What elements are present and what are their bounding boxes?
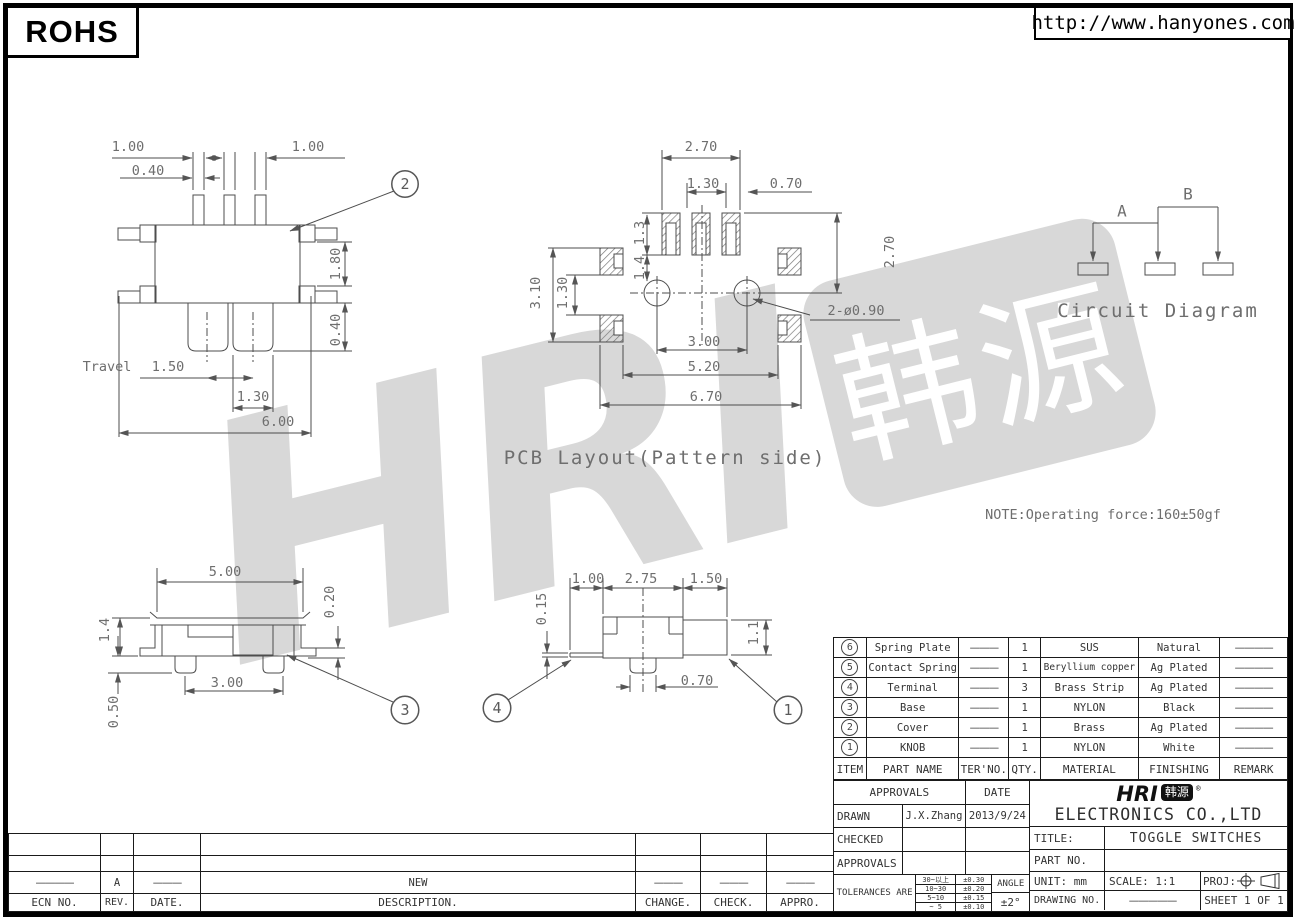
col-check: CHECK. — [701, 894, 767, 911]
sheet-cell: SHEET 1 OF 1 — [1201, 891, 1287, 910]
finishing: Ag Plated — [1139, 658, 1221, 677]
website-url: http://www.hanyones.com — [1034, 8, 1290, 40]
dim-hole-diameter: 2-ø0.90 — [828, 303, 885, 319]
ter-no: ——— — [959, 738, 1009, 757]
table-row: 3 Base ——— 1 NYLON Black ———— — [834, 698, 1287, 718]
item-circle: 4 — [841, 679, 858, 696]
tolerances-label: TOLERANCES ARE — [834, 875, 916, 911]
dim-hole-pitch: 3.00 — [688, 334, 721, 350]
item-circle: 6 — [841, 639, 858, 656]
dim-inner-span: 5.20 — [688, 359, 721, 375]
dim-pin-height: 0.50 — [106, 696, 122, 729]
dim-knob-height: 1.1 — [746, 621, 762, 645]
scale-cell: SCALE: 1:1 — [1105, 872, 1201, 890]
tolerance-subtable: 30~以上 ±0.30 10~30 ±0.20 5~10 ±0.15 ~ 5 ±… — [916, 875, 992, 911]
material: Brass Strip — [1041, 678, 1139, 697]
part-name: Terminal — [867, 678, 960, 697]
callout-cover: 2 — [391, 170, 419, 198]
dim-pin-pitch-right: 1.00 — [292, 139, 325, 155]
rohs-badge: ROHS — [8, 8, 139, 58]
dim-pin-width: 0.40 — [132, 163, 165, 179]
tol-value: ±0.30 — [956, 875, 991, 884]
dim-clearance: 0.20 — [322, 586, 338, 619]
tol-value: ±0.10 — [956, 903, 991, 911]
rev-appro: ——— — [767, 872, 833, 893]
company-logo: HRI 韩源 ® — [1116, 784, 1200, 805]
drawn-by: J.X.Zhang — [903, 805, 965, 827]
tol-value: ±0.20 — [956, 885, 991, 893]
table-row: 4 Terminal ——— 3 Brass Strip Ag Plated —… — [834, 678, 1287, 698]
operating-force-note: NOTE:Operating force:160±50gf — [985, 507, 1221, 523]
terminal-a-label: A — [1117, 202, 1127, 221]
material: Brass — [1041, 718, 1139, 737]
dim-front-left: 1.00 — [572, 571, 605, 587]
col-ecn-no: ECN NO. — [9, 894, 101, 911]
qty: 1 — [1009, 658, 1041, 677]
angle-value: ±2° — [992, 893, 1029, 911]
revision-header-row: ECN NO. REV. DATE. DESCRIPTION. CHANGE. … — [9, 894, 833, 911]
item-circle: 2 — [841, 719, 858, 736]
dim-travel-label: Travel — [83, 359, 132, 375]
col-appro: APPRO. — [767, 894, 833, 911]
revision-table: ———— A ——— NEW ——— ——— ——— ECN NO. REV. … — [8, 833, 834, 912]
finishing: Natural — [1139, 638, 1221, 657]
dim-front-pin-width: 0.70 — [681, 673, 714, 689]
table-row: 1 KNOB ——— 1 NYLON White ———— — [834, 738, 1287, 758]
ter-no: ——— — [959, 718, 1009, 737]
projection-cell: PROJ: — [1201, 872, 1287, 890]
registered-mark: ® — [1196, 784, 1201, 793]
engineering-drawing-sheet: { "header": { "rohs": "ROHS", "url": "ht… — [0, 0, 1296, 920]
dim-side-gap: 1.30 — [555, 277, 571, 310]
ter-no: ——— — [959, 678, 1009, 697]
dim-ear-offset: 0.40 — [328, 314, 344, 347]
unit-cell: UNIT: mm — [1030, 872, 1105, 890]
callout-base: 3 — [391, 696, 419, 724]
col-description: DESCRIPTION. — [201, 894, 636, 911]
dim-col-height: 2.70 — [882, 236, 898, 269]
dim-plate-thickness: 0.15 — [534, 593, 550, 626]
approvals-block: APPROVALS DATE DRAWN J.X.Zhang 2013/9/24… — [833, 780, 1030, 912]
logo-cn-box: 韩源 — [1161, 784, 1193, 802]
rev: A — [101, 872, 134, 893]
material: Beryllium copper — [1041, 658, 1139, 677]
ter-no: ——— — [959, 658, 1009, 677]
approvals-header: APPROVALS — [834, 781, 966, 804]
col-item: ITEM — [834, 758, 867, 781]
remark: ———— — [1220, 698, 1287, 717]
dim-cover-width: 5.00 — [209, 564, 242, 580]
ter-no: ——— — [959, 638, 1009, 657]
title-label: TITLE: — [1030, 827, 1105, 849]
dim-travel-value: 1.50 — [152, 359, 185, 375]
col-ter-no: TER'NO. — [959, 758, 1009, 781]
item-circle: 5 — [841, 659, 858, 676]
material: SUS — [1041, 638, 1139, 657]
material: NYLON — [1041, 698, 1139, 717]
dim-side-height: 1.4 — [97, 618, 113, 642]
callout-knob: 1 — [774, 696, 802, 724]
col-part-name: PART NAME — [867, 758, 960, 781]
proj-label: PROJ: — [1203, 875, 1236, 888]
dim-side-span: 3.10 — [528, 277, 544, 310]
checked-label: CHECKED — [834, 828, 903, 851]
remark: ———— — [1220, 678, 1287, 697]
qty: 1 — [1009, 638, 1041, 657]
revision-row: ———— A ——— NEW ——— ——— ——— — [9, 872, 833, 894]
part-name: Base — [867, 698, 960, 717]
item-circle: 1 — [841, 739, 858, 756]
table-row: 2 Cover ——— 1 Brass Ag Plated ———— — [834, 718, 1287, 738]
finishing: Ag Plated — [1139, 678, 1221, 697]
item-circle: 3 — [841, 699, 858, 716]
revision-blank-row — [9, 856, 833, 872]
rev-check: ——— — [701, 872, 767, 893]
dim-pad-pitch: 1.30 — [687, 176, 720, 192]
parts-table-header-row: ITEM PART NAME TER'NO. QTY. MATERIAL FIN… — [834, 758, 1287, 781]
rev-date: ——— — [134, 872, 201, 893]
drawing-no-label: DRAWING NO. — [1030, 891, 1105, 910]
col-remark: REMARK — [1220, 758, 1287, 781]
remark: ———— — [1220, 638, 1287, 657]
dim-knob-width: 1.30 — [237, 389, 270, 405]
drawn-label: DRAWN — [834, 805, 903, 827]
logo-hri-text: HRI — [1116, 784, 1158, 805]
qty: 3 — [1009, 678, 1041, 697]
company-name: ELECTRONICS CO.,LTD — [1055, 805, 1263, 824]
dim-front-mid: 2.75 — [625, 571, 658, 587]
terminal-b-label: B — [1183, 185, 1193, 204]
remark: ———— — [1220, 658, 1287, 677]
col-finishing: FINISHING — [1139, 758, 1221, 781]
drawing-title: TOGGLE SWITCHES — [1105, 827, 1287, 849]
dim-outer-span: 6.70 — [690, 389, 723, 405]
date-header: DATE — [966, 781, 1029, 804]
tol-range: 30~以上 — [916, 875, 956, 884]
part-name: Cover — [867, 718, 960, 737]
dim-pad-span: 2.70 — [685, 139, 718, 155]
third-angle-projection-icon — [1237, 872, 1285, 890]
col-change: CHANGE. — [636, 894, 701, 911]
parts-table: 6 Spring Plate ——— 1 SUS Natural ———— 5 … — [833, 637, 1288, 780]
col-rev: REV. — [101, 894, 134, 911]
drawing-no-value: ————— — [1105, 891, 1201, 910]
dim-front-right: 1.50 — [690, 571, 723, 587]
approvals-label: APPROVALS — [834, 852, 903, 874]
part-name: Spring Plate — [867, 638, 960, 657]
dim-pin-pitch-side: 3.00 — [211, 675, 244, 691]
finishing: White — [1139, 738, 1221, 757]
rev-description: NEW — [201, 872, 636, 893]
revision-blank-row — [9, 834, 833, 856]
finishing: Ag Plated — [1139, 718, 1221, 737]
qty: 1 — [1009, 718, 1041, 737]
ter-no: ——— — [959, 698, 1009, 717]
pcb-layout-title: PCB Layout(Pattern side) — [504, 447, 827, 469]
qty: 1 — [1009, 698, 1041, 717]
remark: ———— — [1220, 738, 1287, 757]
col-material: MATERIAL — [1041, 758, 1139, 781]
finishing: Black — [1139, 698, 1221, 717]
part-name: Contact Spring — [867, 658, 960, 677]
angle-cell: ANGLE ±2° — [992, 875, 1029, 911]
angle-label: ANGLE — [992, 875, 1029, 893]
qty: 1 — [1009, 738, 1041, 757]
tol-range: ~ 5 — [916, 903, 956, 911]
dim-pad-offset: 0.70 — [770, 176, 803, 192]
material: NYLON — [1041, 738, 1139, 757]
col-qty: QTY. — [1009, 758, 1041, 781]
table-row: 5 Contact Spring ——— 1 Beryllium copper … — [834, 658, 1287, 678]
drawn-date: 2013/9/24 — [966, 805, 1029, 827]
table-row: 6 Spring Plate ——— 1 SUS Natural ———— — [834, 638, 1287, 658]
dim-pin-pitch-left: 1.00 — [112, 139, 145, 155]
circuit-diagram-title: Circuit Diagram — [1057, 300, 1259, 322]
dim-body-width: 6.00 — [262, 414, 295, 430]
dim-body-height: 1.80 — [328, 248, 344, 281]
ecn-no: ———— — [9, 872, 101, 893]
remark: ———— — [1220, 718, 1287, 737]
tol-value: ±0.15 — [956, 894, 991, 902]
col-date: DATE. — [134, 894, 201, 911]
company-title-block: HRI 韩源 ® ELECTRONICS CO.,LTD TITLE: TOGG… — [1029, 780, 1288, 912]
tol-range: 5~10 — [916, 894, 956, 902]
part-name: KNOB — [867, 738, 960, 757]
tol-range: 10~30 — [916, 885, 956, 893]
rev-change: ——— — [636, 872, 701, 893]
part-no-label: PART NO. — [1030, 850, 1105, 871]
callout-terminal: 4 — [483, 694, 511, 722]
dim-hole-offset: 1.4 — [632, 256, 648, 280]
dim-pad-height: 1.3 — [632, 221, 648, 245]
